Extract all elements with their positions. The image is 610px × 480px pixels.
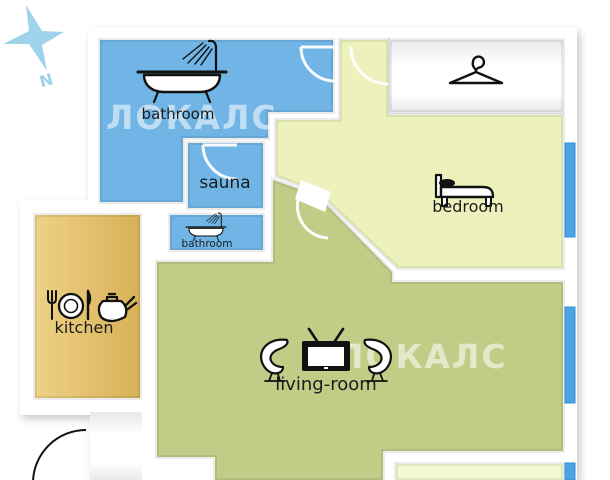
compass-icon: N xyxy=(3,5,64,91)
compass-north-label: N xyxy=(37,70,55,92)
compass-star xyxy=(3,5,64,71)
window-balcony xyxy=(565,463,575,480)
floor-plan-svg: ЛОКАЛС ЛОКАЛС bathroom sauna bathroom ki… xyxy=(0,0,610,480)
door-arc-entrance xyxy=(33,430,86,480)
label-sauna: sauna xyxy=(199,173,250,193)
room-balcony-floor xyxy=(396,464,563,480)
window-living xyxy=(565,307,575,403)
label-bathroom-small: bathroom xyxy=(181,238,232,250)
floor-plan-image: ЛОКАЛС ЛОКАЛС bathroom sauna bathroom ki… xyxy=(0,0,610,480)
label-kitchen: kitchen xyxy=(55,318,114,337)
label-living-room: living-room xyxy=(275,374,377,395)
tv-screen xyxy=(308,347,344,366)
label-bedroom: bedroom xyxy=(432,197,504,216)
watermark-text-bottom: ЛОКАЛС xyxy=(336,337,508,376)
label-bathroom-main: bathroom xyxy=(142,105,215,123)
room-closet-floor xyxy=(390,40,563,112)
room-entrance-hall-floor xyxy=(90,412,142,480)
window-bedroom xyxy=(565,143,575,237)
